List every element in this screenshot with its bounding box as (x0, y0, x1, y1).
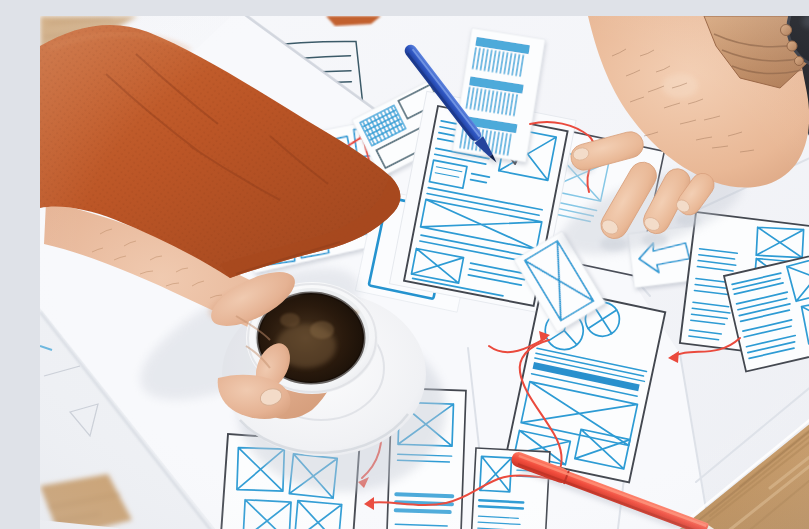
desk-photo (40, 16, 809, 529)
